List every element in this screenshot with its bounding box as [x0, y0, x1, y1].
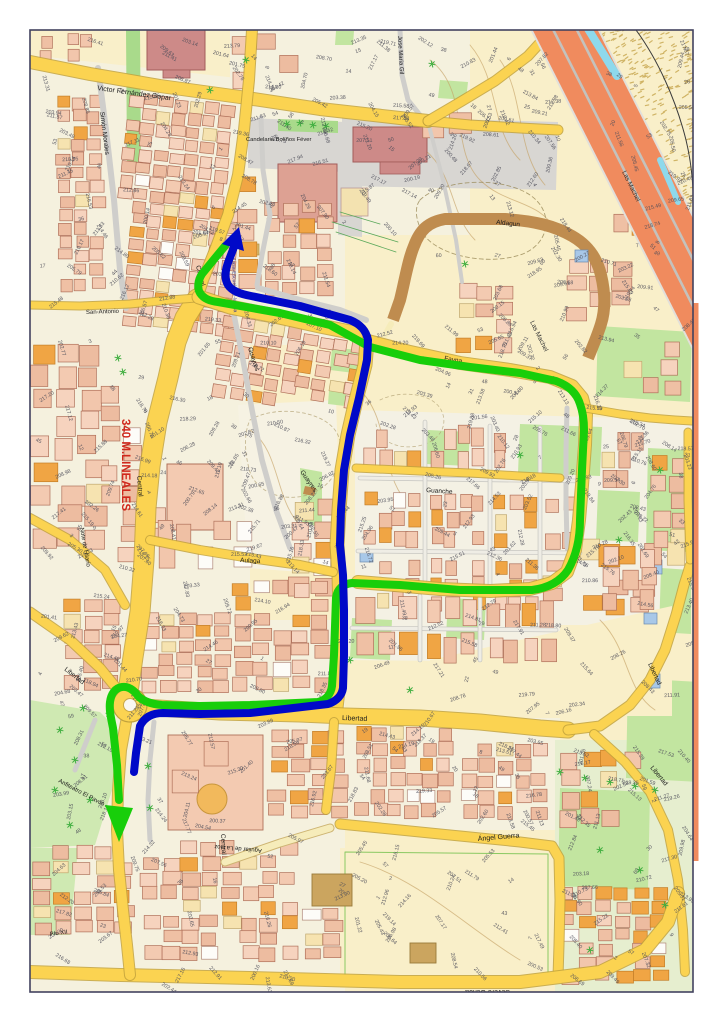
- svg-text:29: 29: [138, 375, 145, 382]
- svg-text:Libertad: Libertad: [342, 715, 368, 723]
- svg-text:38: 38: [677, 472, 684, 479]
- svg-text:60: 60: [436, 253, 442, 259]
- svg-text:203.38: 203.38: [329, 95, 346, 102]
- svg-text:219.35: 219.35: [622, 780, 638, 786]
- svg-text:25: 25: [603, 444, 609, 450]
- svg-text:5: 5: [144, 409, 147, 415]
- svg-text:219.33: 219.33: [416, 788, 433, 795]
- svg-text:211.28: 211.28: [530, 623, 546, 629]
- svg-text:210.86: 210.86: [582, 578, 598, 584]
- svg-text:38: 38: [440, 47, 447, 54]
- svg-text:218.95: 218.95: [62, 156, 79, 163]
- svg-text:214.20: 214.20: [392, 340, 408, 346]
- svg-text:52: 52: [267, 854, 274, 861]
- svg-text:38: 38: [83, 753, 89, 759]
- svg-text:23: 23: [442, 501, 449, 508]
- svg-text:11: 11: [388, 644, 394, 651]
- svg-text:200.37: 200.37: [209, 818, 226, 825]
- svg-text:340 M.LINEALES: 340 M.LINEALES: [119, 419, 131, 511]
- svg-text:218.80: 218.80: [545, 623, 562, 630]
- svg-text:210.10: 210.10: [260, 340, 276, 346]
- svg-text:43: 43: [501, 911, 508, 918]
- svg-text:214.18: 214.18: [141, 473, 157, 479]
- svg-text:51: 51: [669, 532, 676, 539]
- svg-text:211.44: 211.44: [299, 507, 315, 514]
- svg-text:22: 22: [464, 676, 471, 683]
- svg-text:9: 9: [93, 526, 96, 532]
- svg-text:203.18: 203.18: [573, 871, 590, 878]
- svg-text:17: 17: [40, 263, 46, 269]
- svg-text:208.61: 208.61: [483, 132, 500, 139]
- svg-text:209.54: 209.54: [604, 478, 620, 484]
- svg-text:24: 24: [160, 470, 166, 476]
- svg-text:218.29: 218.29: [180, 416, 197, 423]
- svg-text:49: 49: [653, 250, 660, 257]
- svg-text:211.91: 211.91: [664, 692, 680, 699]
- svg-text:Aulaga: Aulaga: [240, 557, 261, 565]
- svg-text:29: 29: [479, 621, 485, 627]
- svg-text:14: 14: [345, 68, 352, 75]
- svg-text:Candelaria Bolíños Féver: Candelaria Bolíños Féver: [246, 137, 311, 143]
- svg-text:26: 26: [684, 79, 691, 86]
- svg-text:San-Antonio: San-Antonio: [86, 309, 120, 316]
- svg-text:38: 38: [401, 615, 408, 622]
- svg-text:212.86: 212.86: [123, 187, 140, 194]
- svg-text:213.79: 213.79: [224, 43, 241, 50]
- svg-text:217.38: 217.38: [393, 115, 410, 122]
- svg-text:48: 48: [481, 379, 487, 385]
- svg-text:207.66: 207.66: [582, 885, 598, 892]
